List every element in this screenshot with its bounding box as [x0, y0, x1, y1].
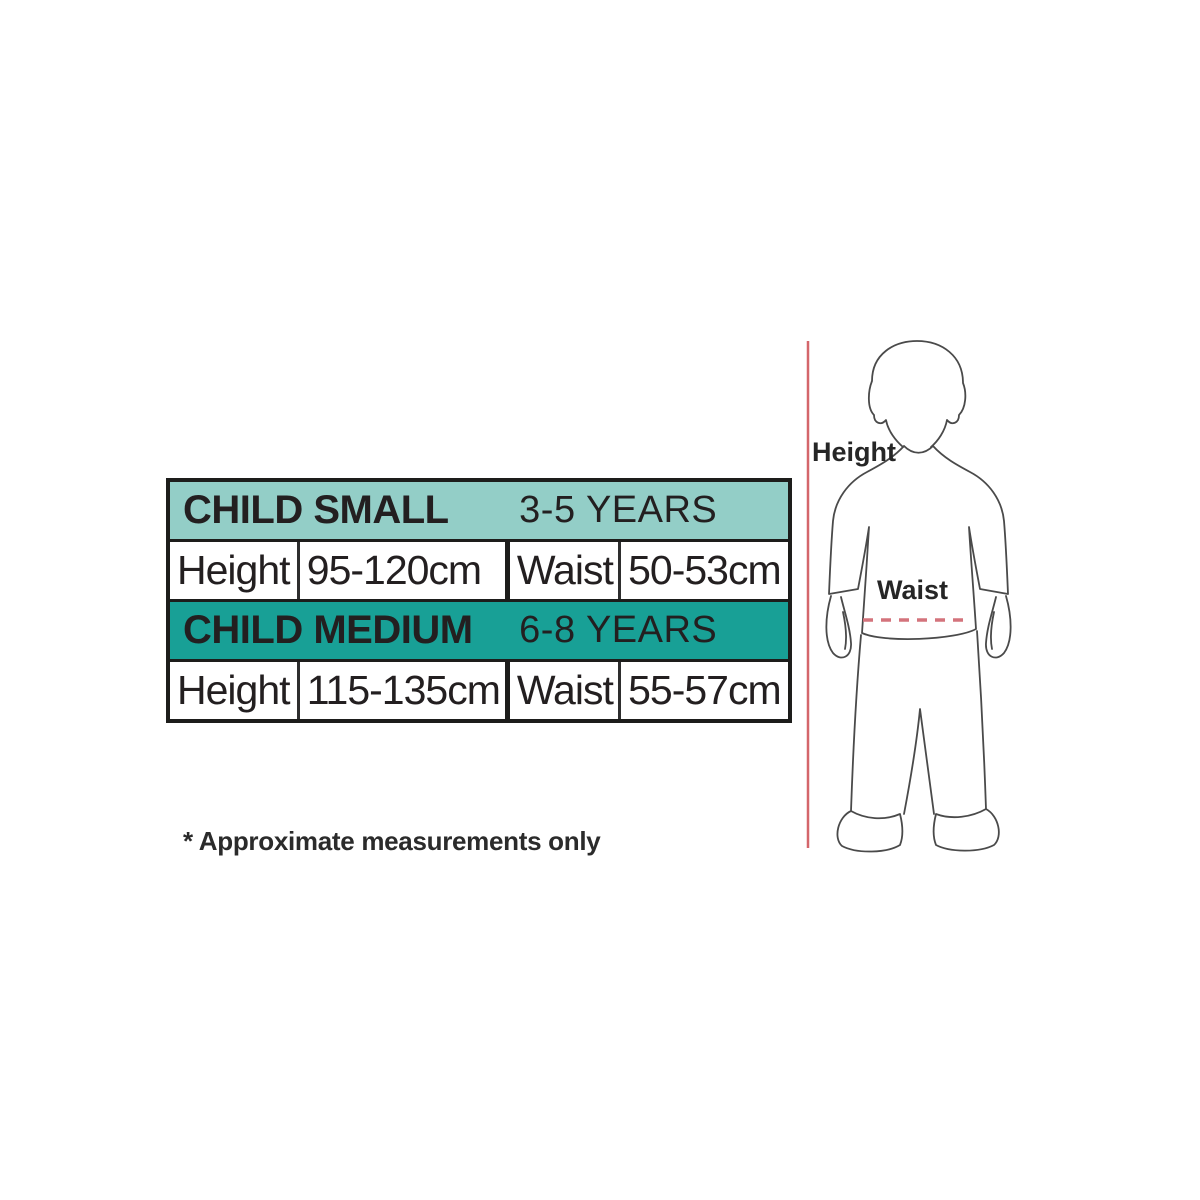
measurement-row-child-medium: Height 115-135cm Waist 55-57cm — [170, 662, 788, 719]
waist-measure-label: Waist — [877, 575, 948, 606]
age-range-child-medium: 6-8 YEARS — [519, 609, 717, 652]
waist-label: Waist — [510, 662, 621, 719]
size-chart-page: CHILD SMALL 3-5 YEARS Height 95-120cm Wa… — [0, 0, 1200, 1200]
height-value: 95-120cm — [300, 542, 510, 599]
height-label: Height — [170, 542, 300, 599]
age-range-child-small: 3-5 YEARS — [519, 489, 717, 532]
waist-value: 55-57cm — [621, 662, 788, 719]
height-label: Height — [170, 662, 300, 719]
child-figure-diagram: Height Waist — [788, 325, 1020, 870]
size-name-child-small: CHILD SMALL — [183, 488, 449, 533]
height-measure-label: Height — [812, 437, 896, 468]
size-header-child-medium: CHILD MEDIUM 6-8 YEARS — [170, 602, 788, 662]
waist-label: Waist — [510, 542, 621, 599]
footnote: * Approximate measurements only — [183, 826, 600, 857]
size-header-child-small: CHILD SMALL 3-5 YEARS — [170, 482, 788, 542]
size-name-child-medium: CHILD MEDIUM — [183, 608, 473, 653]
size-chart-table: CHILD SMALL 3-5 YEARS Height 95-120cm Wa… — [166, 478, 792, 723]
height-value: 115-135cm — [300, 662, 510, 719]
waist-value: 50-53cm — [621, 542, 788, 599]
measurement-row-child-small: Height 95-120cm Waist 50-53cm — [170, 542, 788, 602]
